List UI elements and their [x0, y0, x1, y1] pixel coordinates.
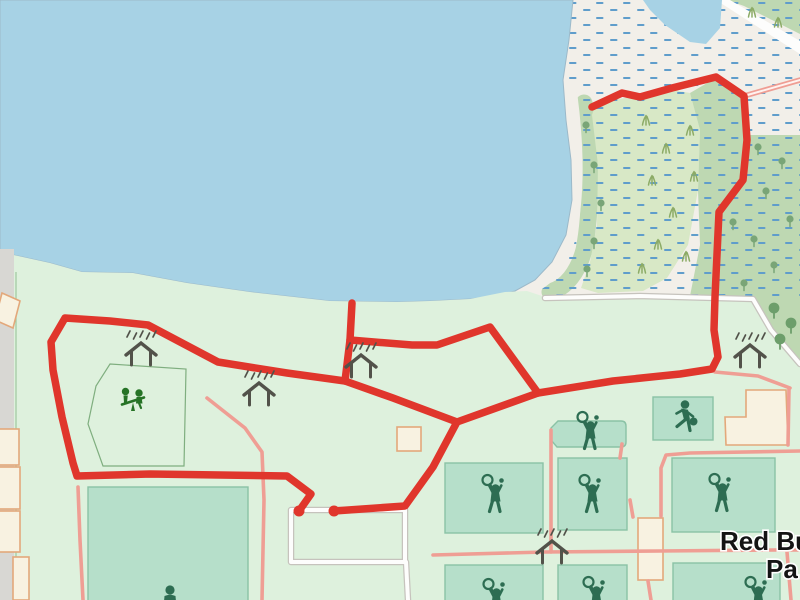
map-canvas[interactable]: Red Bu Pa	[0, 0, 800, 600]
place-label-line2: Pa	[766, 554, 798, 584]
building	[0, 429, 19, 465]
building	[0, 467, 20, 509]
route-endpoint-dot	[294, 506, 305, 517]
multi-court	[88, 487, 248, 600]
route-endpoint-dot	[329, 506, 340, 517]
place-label-line1: Red Bu	[720, 526, 800, 556]
building	[13, 557, 29, 600]
building	[638, 518, 663, 580]
building	[0, 511, 20, 552]
building	[397, 427, 421, 451]
lake	[0, 0, 573, 302]
